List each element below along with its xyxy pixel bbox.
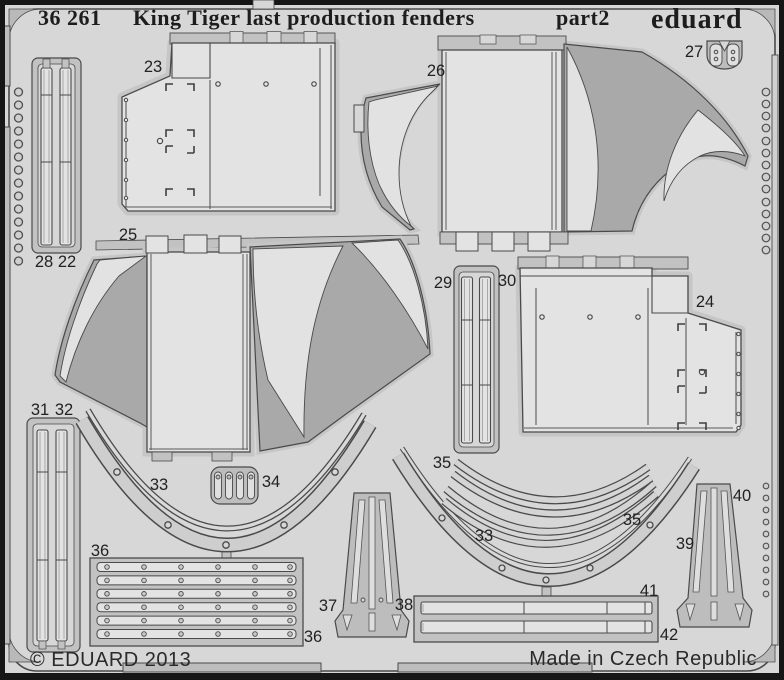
- part-36-rib-strips: [90, 558, 303, 646]
- part-label-30: 30: [498, 272, 516, 290]
- part-label-27: 27: [685, 43, 703, 61]
- part-label-33: 33: [150, 476, 168, 494]
- copyright-text: © EDUARD 2013: [30, 649, 191, 671]
- part-label-22: 22: [58, 253, 76, 271]
- part-24-fender-panel: [518, 256, 741, 432]
- tooling-holes-right-lower: [763, 483, 769, 597]
- made-in-text: Made in Czech Republic: [529, 648, 757, 670]
- part-label-36: 36: [91, 542, 109, 560]
- part-label-37: 37: [319, 597, 337, 615]
- border-notch: [253, 0, 274, 9]
- brand-logo: eduard: [651, 4, 743, 35]
- fret-graphic: 36 261 King Tiger last production fender…: [0, 0, 784, 680]
- catalog-number: 36 261: [38, 5, 102, 30]
- tooling-holes-right-upper: [762, 88, 770, 254]
- corner-top-left: [9, 9, 41, 41]
- part-label-35b: 35: [623, 511, 641, 529]
- center-panel: [147, 252, 250, 452]
- part-label-42: 42: [660, 626, 678, 644]
- parts-41-42-strips: [414, 596, 658, 642]
- part-label-35: 35: [433, 454, 451, 472]
- parts-31-32-strips: [27, 418, 80, 652]
- part-label-40: 40: [733, 487, 751, 505]
- tooling-holes-left: [15, 88, 23, 265]
- footer: © EDUARD 2013 Made in Czech Republic: [30, 648, 757, 671]
- part-label-41: 41: [640, 582, 658, 600]
- part-label-31: 31: [31, 401, 49, 419]
- part-27-hinge-bracket: [707, 41, 742, 69]
- part-26-curved-fender: [354, 35, 748, 251]
- parts-29-30-strips: [454, 266, 499, 453]
- edge-rail-right: [772, 55, 778, 645]
- part-suffix: part2: [556, 5, 610, 30]
- part-label-28: 28: [35, 253, 53, 271]
- part-34-clamp-plate: [211, 467, 258, 504]
- part-label-29: 29: [434, 274, 452, 292]
- part-label-24: 24: [696, 293, 714, 311]
- center-panel: [442, 50, 562, 232]
- part-label-34: 34: [262, 473, 280, 491]
- part-label-36b: 36: [304, 628, 322, 646]
- part-label-32: 32: [55, 401, 73, 419]
- parts-39-40-stand: [677, 484, 752, 627]
- part-label-33b: 33: [475, 527, 493, 545]
- part-label-38: 38: [395, 596, 413, 614]
- part-label-39: 39: [676, 535, 694, 553]
- page-title: King Tiger last production fenders: [133, 5, 475, 30]
- part-label-25: 25: [119, 226, 137, 244]
- part-label-23: 23: [144, 58, 162, 76]
- parts-37-38-stand: [335, 493, 409, 637]
- parts-28-22-strips: [32, 58, 81, 253]
- photo-etch-fret-sheet: 36 261 King Tiger last production fender…: [0, 0, 784, 680]
- corner-top-right: [743, 9, 775, 41]
- part-label-26: 26: [427, 62, 445, 80]
